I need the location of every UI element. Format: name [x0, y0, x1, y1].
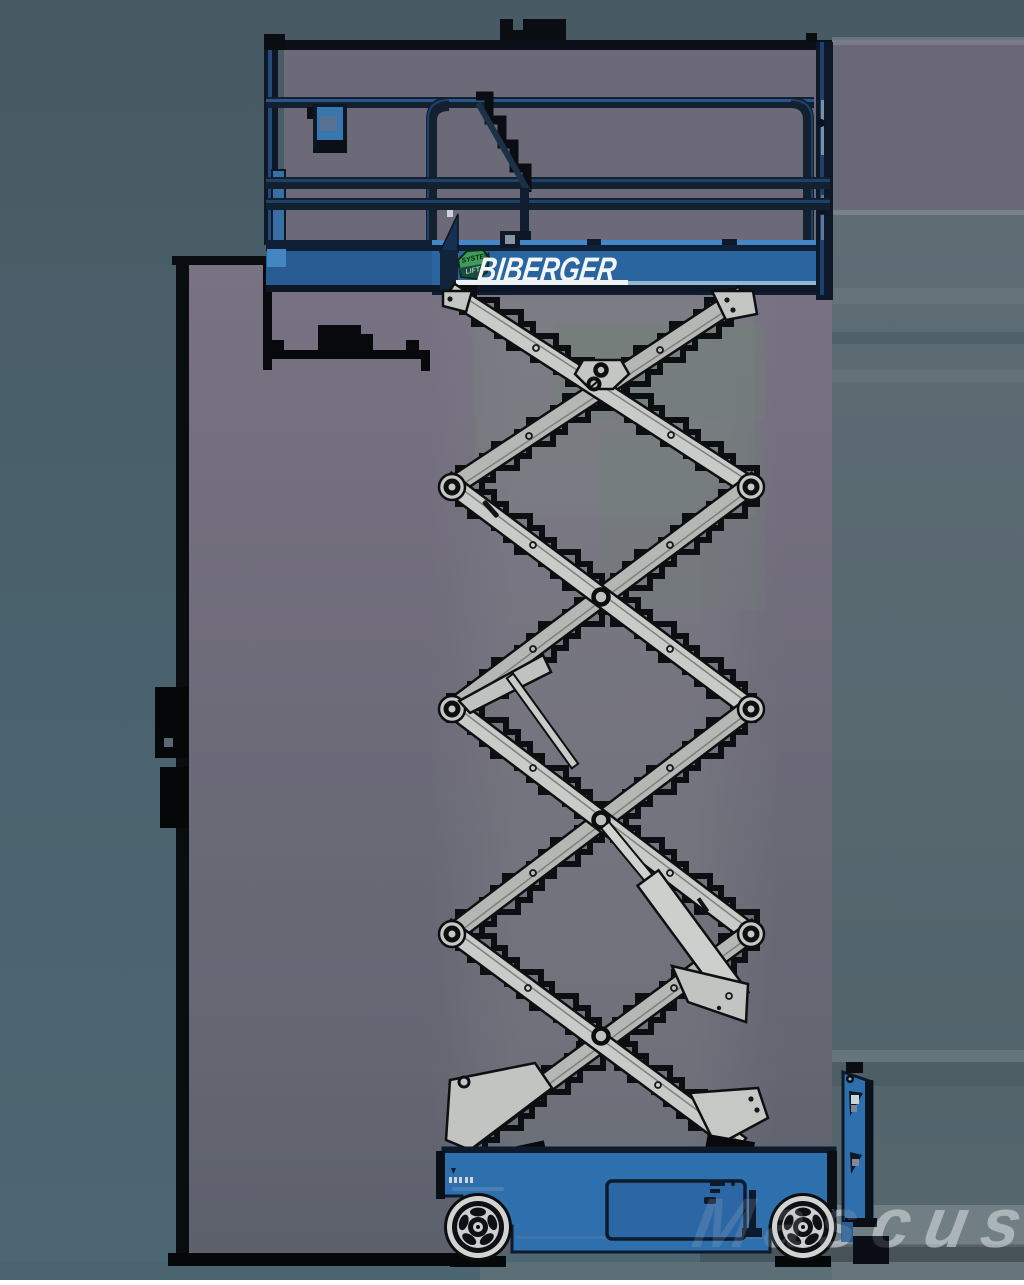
svg-text:Mascus: Mascus	[687, 1183, 1024, 1261]
